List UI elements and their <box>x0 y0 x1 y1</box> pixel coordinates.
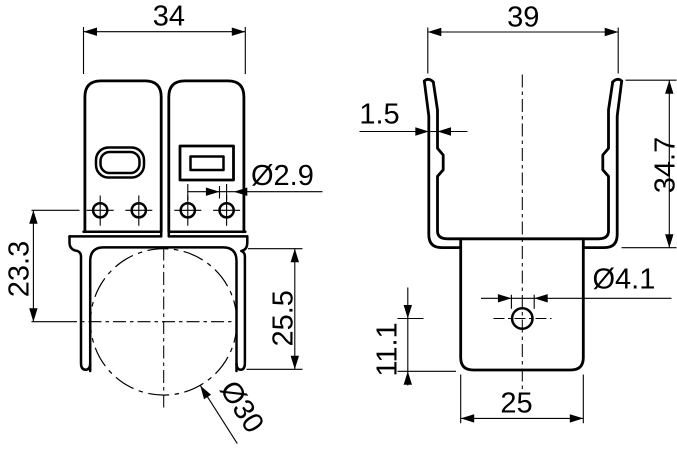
dim-sheet-thickness-label: 1.5 <box>359 99 399 131</box>
front-view <box>64 81 247 412</box>
dim-tab-hole-height: 11.1 <box>372 288 457 386</box>
dim-side-width-label: 39 <box>507 2 539 34</box>
dim-tab-width-label: 25 <box>500 388 532 420</box>
dim-side-height: 34.7 <box>622 80 677 248</box>
arm-left-tip-cap <box>424 79 433 82</box>
dim-tube-dia-label: Ø30 <box>213 375 270 438</box>
dim-side-height-label: 34.7 <box>650 137 677 193</box>
side-view <box>424 75 621 392</box>
dim-tab-hole-height-label: 11.1 <box>372 322 404 376</box>
slot-rect-inner <box>191 157 224 171</box>
dim-tab-width: 25 <box>461 375 584 424</box>
technical-drawing: 34 Ø2.9 23.3 25.5 Ø30 <box>0 0 677 452</box>
dim-front-center-offset-label: 23.3 <box>4 241 36 297</box>
drawing-canvas: 34 Ø2.9 23.3 25.5 Ø30 <box>0 0 677 452</box>
dim-tube-dia: Ø30 <box>197 375 270 443</box>
inner-contour <box>433 82 612 239</box>
slot-rounded-inner <box>101 152 140 173</box>
dim-front-hole-dia-label: Ø2.9 <box>251 160 314 192</box>
dim-front-center-offset: 23.3 <box>4 210 80 321</box>
dim-tab-hole-dia-label: Ø4.1 <box>593 264 656 296</box>
slot-rect-outer <box>180 146 234 180</box>
dim-sheet-thickness: 1.5 <box>359 99 467 136</box>
dim-front-leg-depth-label: 25.5 <box>268 290 300 346</box>
dim-front-leg-depth: 25.5 <box>247 249 303 370</box>
prong-bottom-lines <box>70 232 248 237</box>
dim-side-width: 39 <box>428 2 618 74</box>
leg-right <box>237 236 248 369</box>
dim-tab-hole-dia: Ø4.1 <box>481 264 672 309</box>
detent-holes <box>87 196 240 226</box>
dim-front-width: 34 <box>84 1 246 74</box>
leg-left <box>70 236 91 369</box>
dim-front-width-label: 34 <box>153 1 185 33</box>
